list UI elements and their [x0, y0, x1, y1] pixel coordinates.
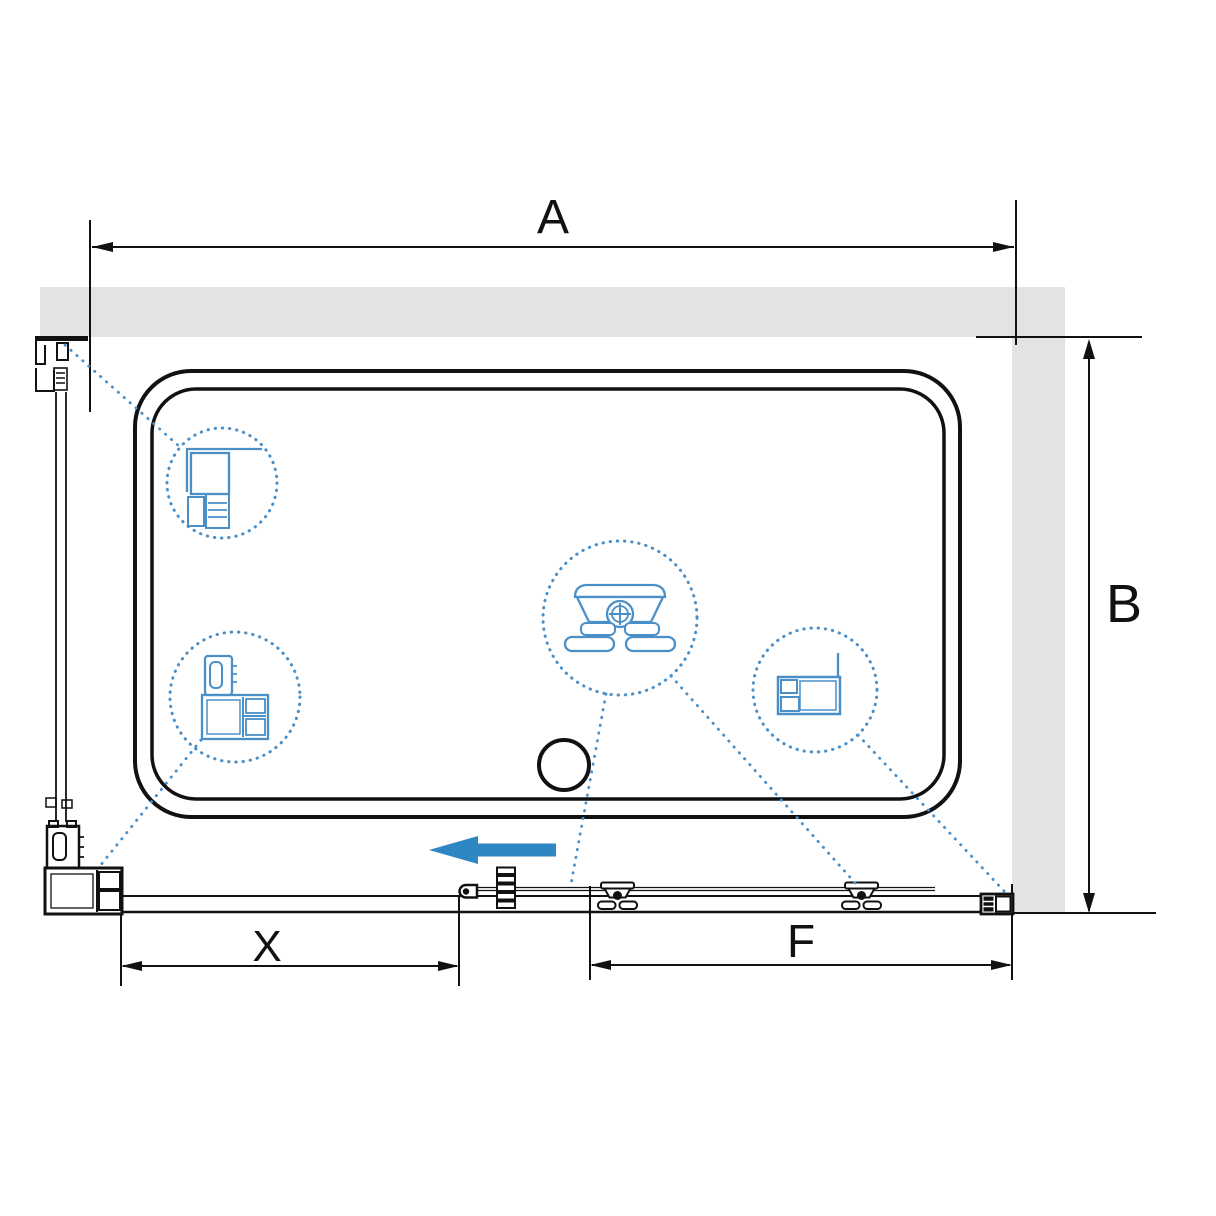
drain-icon: [539, 740, 589, 790]
arrowhead-down-icon: [1083, 893, 1095, 913]
dimension-b: B: [976, 337, 1156, 913]
roller-carriage-detail-drawing: [565, 585, 675, 651]
detail-circle-corner-profile: [170, 632, 300, 762]
detail-circle-wall-profile: [167, 428, 277, 538]
dim-x-label: X: [252, 922, 281, 971]
arrowhead-left-icon: [92, 242, 113, 252]
wall-profile-detail-drawing: [187, 449, 262, 528]
wall-profile-right-detail-drawing: [778, 653, 840, 714]
wall-profile-top-left: [35, 336, 88, 391]
door-handle: [460, 885, 478, 898]
corner-profile-bottom-left: [45, 821, 122, 914]
dim-a-label: A: [537, 191, 569, 244]
corner-profile-detail-drawing: [202, 656, 268, 739]
leader-lines: [65, 345, 1004, 891]
detail-circle-wall-profile-right: [753, 628, 877, 752]
arrowhead-right-icon: [993, 242, 1014, 252]
slide-direction-arrow: [429, 836, 556, 864]
left-arrow-icon: [429, 836, 556, 864]
shower-enclosure-diagram: A B X F: [0, 0, 1216, 1216]
arrowhead-up-icon: [1083, 339, 1095, 359]
wall-right: [1012, 337, 1065, 913]
wall-top: [40, 287, 1065, 337]
arrowhead-left-icon: [121, 961, 142, 971]
arrowhead-right-icon: [991, 960, 1012, 970]
wall-profile-bottom-right: [981, 894, 1013, 914]
arrowhead-left-icon: [590, 960, 611, 970]
dimension-x: X: [121, 895, 459, 986]
magnet-seal-stack: [497, 868, 515, 909]
detail-circle-roller-carriage: [543, 541, 697, 695]
arrowhead-right-icon: [438, 961, 459, 971]
fixed-side-panel-left: [46, 392, 72, 822]
dim-f-label: F: [787, 915, 815, 967]
dim-b-label: B: [1106, 574, 1142, 634]
dimension-f: F: [590, 884, 1012, 980]
